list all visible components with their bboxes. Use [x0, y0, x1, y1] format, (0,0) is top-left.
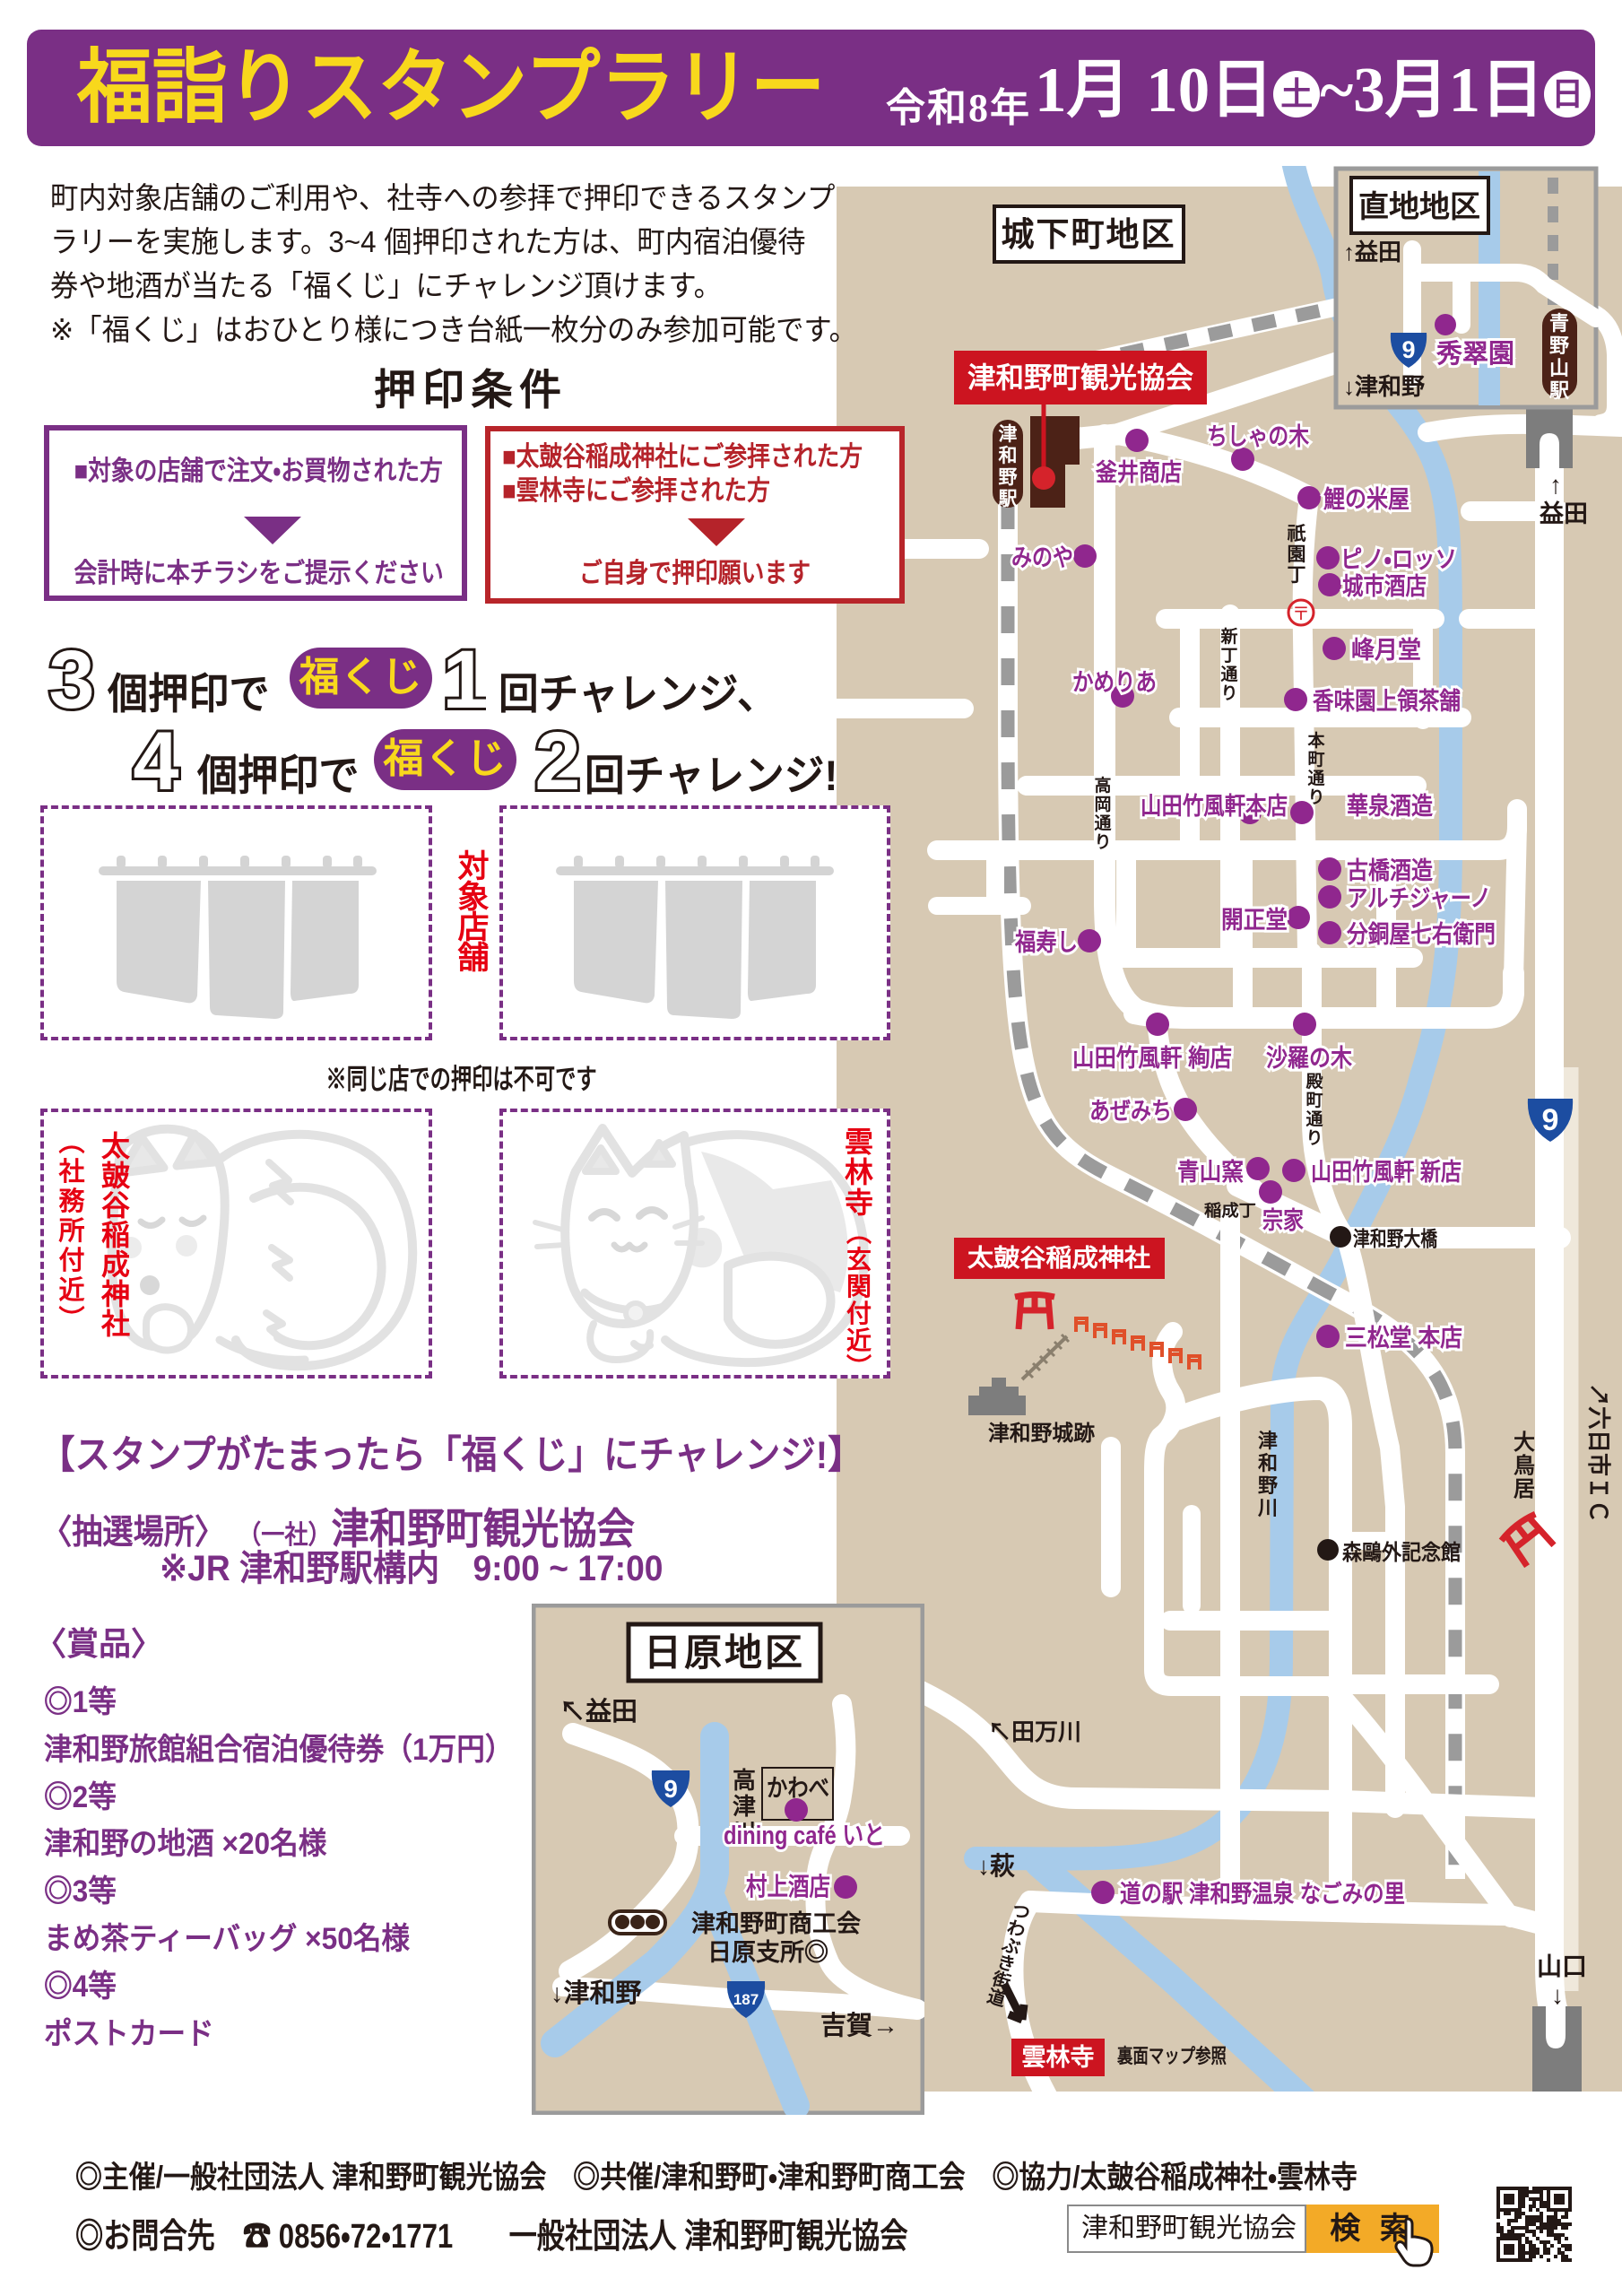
- svg-text:↓津和野: ↓津和野: [1343, 373, 1425, 400]
- svg-text:古橋酒造: 古橋酒造: [1347, 857, 1433, 884]
- svg-text:秀翠園: 秀翠園: [1436, 339, 1514, 369]
- svg-text:↑: ↑: [1549, 471, 1562, 499]
- svg-text:華泉酒造: 華泉酒造: [1347, 792, 1433, 820]
- svg-text:町: 町: [1307, 750, 1324, 770]
- svg-text:裏面マップ参照: 裏面マップ参照: [1116, 2045, 1227, 2067]
- svg-text:〒: 〒: [1292, 604, 1310, 624]
- svg-text:和: 和: [1258, 1452, 1278, 1474]
- svg-text:野: 野: [1549, 335, 1569, 357]
- svg-text:↗六日市ＩＣ: ↗六日市ＩＣ: [1585, 1383, 1612, 1523]
- svg-text:雲林寺: 雲林寺: [1022, 2044, 1095, 2071]
- svg-text:野: 野: [1258, 1474, 1278, 1497]
- svg-text:9: 9: [664, 1775, 678, 1803]
- svg-text:城下町地区: 城下町地区: [1002, 216, 1176, 253]
- svg-text:殿: 殿: [1305, 1072, 1323, 1091]
- svg-text:青: 青: [1549, 312, 1569, 335]
- svg-text:1: 1: [445, 641, 486, 724]
- svg-text:日原地区: 日原地区: [644, 1631, 805, 1674]
- svg-text:野: 野: [999, 467, 1018, 488]
- svg-text:津和野城跡: 津和野城跡: [988, 1421, 1095, 1446]
- svg-text:↑益田: ↑益田: [1343, 239, 1401, 265]
- svg-text:dining café いと: dining café いと: [724, 1822, 885, 1850]
- svg-text:祇: 祇: [1288, 524, 1306, 544]
- svg-text:↖田万川: ↖田万川: [988, 1718, 1081, 1745]
- svg-text:益田: 益田: [1539, 500, 1588, 527]
- svg-text:2: 2: [534, 723, 580, 805]
- svg-text:宗家: 宗家: [1262, 1206, 1304, 1234]
- svg-text:道の駅 津和野温泉 なごみの里: 道の駅 津和野温泉 なごみの里: [1120, 1880, 1405, 1908]
- svg-text:和: 和: [999, 446, 1018, 466]
- svg-text:新: 新: [1219, 627, 1237, 647]
- svg-text:太皷谷稲成神社: 太皷谷稲成神社: [967, 1245, 1150, 1272]
- svg-text:山田竹風軒本店: 山田竹風軒本店: [1141, 792, 1288, 820]
- svg-text:沙羅の木: 沙羅の木: [1266, 1045, 1352, 1072]
- svg-text:津: 津: [733, 1793, 756, 1820]
- svg-text:駅: 駅: [1549, 379, 1569, 402]
- svg-text:ピノ・ロッソ: ピノ・ロッソ: [1340, 546, 1457, 573]
- svg-text:かわべ: かわべ: [767, 1775, 829, 1802]
- svg-text:福寿し: 福寿し: [1014, 929, 1078, 956]
- svg-text:釜井商店: 釜井商店: [1095, 459, 1182, 486]
- svg-text:岡: 岡: [1094, 796, 1111, 814]
- svg-text:かめりあ: かめりあ: [1072, 669, 1157, 696]
- svg-text:日原支所◎: 日原支所◎: [707, 1939, 828, 1966]
- svg-text:丁: 丁: [1220, 647, 1237, 665]
- svg-text:津和野町観光協会: 津和野町観光協会: [967, 361, 1193, 394]
- svg-text:山田竹風軒 絢店: 山田竹風軒 絢店: [1072, 1044, 1232, 1072]
- svg-text:↓: ↓: [1551, 1981, 1564, 2009]
- svg-text:青山窯: 青山窯: [1177, 1159, 1244, 1186]
- svg-text:あぜみち: あぜみち: [1089, 1098, 1172, 1125]
- svg-text:通: 通: [1305, 1109, 1323, 1129]
- svg-text:り: り: [1305, 1129, 1323, 1148]
- svg-text:直地地区: 直地地区: [1358, 190, 1480, 224]
- svg-text:り: り: [1094, 833, 1111, 852]
- svg-text:通: 通: [1094, 813, 1112, 833]
- svg-text:アルチジャーノ: アルチジャーノ: [1347, 885, 1491, 912]
- svg-text:津: 津: [999, 424, 1018, 445]
- svg-text:ちしゃの木: ちしゃの木: [1207, 423, 1309, 450]
- svg-text:大: 大: [1514, 1431, 1535, 1455]
- svg-text:り: り: [1307, 788, 1324, 807]
- svg-text:開正堂: 開正堂: [1221, 907, 1288, 934]
- svg-text:駅: 駅: [999, 489, 1019, 509]
- svg-text:津和野町商工会: 津和野町商工会: [691, 1910, 861, 1937]
- svg-text:津和野大橋: 津和野大橋: [1353, 1227, 1438, 1250]
- svg-text:3: 3: [48, 641, 94, 724]
- svg-text:山田竹風軒 新店: 山田竹風軒 新店: [1311, 1158, 1462, 1186]
- svg-text:稲成丁: 稲成丁: [1204, 1201, 1256, 1220]
- svg-text:三松堂 本店: 三松堂 本店: [1345, 1325, 1462, 1352]
- svg-text:↖益田: ↖益田: [559, 1697, 638, 1726]
- svg-text:丁: 丁: [1288, 565, 1306, 586]
- svg-text:通: 通: [1307, 769, 1325, 788]
- svg-text:山: 山: [1549, 357, 1569, 379]
- svg-text:森鷗外記念館: 森鷗外記念館: [1342, 1540, 1461, 1565]
- svg-text:187: 187: [733, 1991, 759, 2008]
- svg-text:り: り: [1220, 684, 1237, 703]
- svg-text:川: 川: [1257, 1497, 1278, 1519]
- svg-text:山口: 山口: [1537, 1952, 1587, 1980]
- svg-text:城市酒店: 城市酒店: [1342, 573, 1427, 600]
- svg-text:9: 9: [1542, 1103, 1559, 1137]
- svg-text:9: 9: [1401, 336, 1415, 363]
- svg-text:分銅屋七右衛門: 分銅屋七右衛門: [1346, 920, 1496, 948]
- svg-text:村上酒店: 村上酒店: [746, 1873, 830, 1900]
- svg-text:高: 高: [733, 1767, 756, 1794]
- svg-text:通: 通: [1220, 665, 1238, 684]
- svg-text:居: 居: [1514, 1477, 1535, 1501]
- svg-text:↓萩: ↓萩: [977, 1852, 1015, 1880]
- svg-text:4: 4: [133, 723, 178, 805]
- svg-text:高: 高: [1094, 775, 1111, 796]
- svg-text:香味園上領茶舗: 香味園上領茶舗: [1313, 688, 1461, 715]
- svg-text:津: 津: [1258, 1430, 1278, 1452]
- svg-text:↓津和野: ↓津和野: [551, 1979, 642, 2008]
- svg-text:吉賀→: 吉賀→: [820, 2011, 898, 2040]
- svg-text:園: 園: [1288, 544, 1306, 565]
- svg-text:鯉の米屋: 鯉の米屋: [1323, 486, 1409, 513]
- svg-text:峰月堂: 峰月堂: [1351, 637, 1421, 664]
- svg-text:町: 町: [1305, 1091, 1323, 1110]
- svg-text:本: 本: [1306, 730, 1325, 751]
- svg-text:みのや: みのや: [1011, 544, 1073, 571]
- svg-text:鳥: 鳥: [1514, 1453, 1535, 1478]
